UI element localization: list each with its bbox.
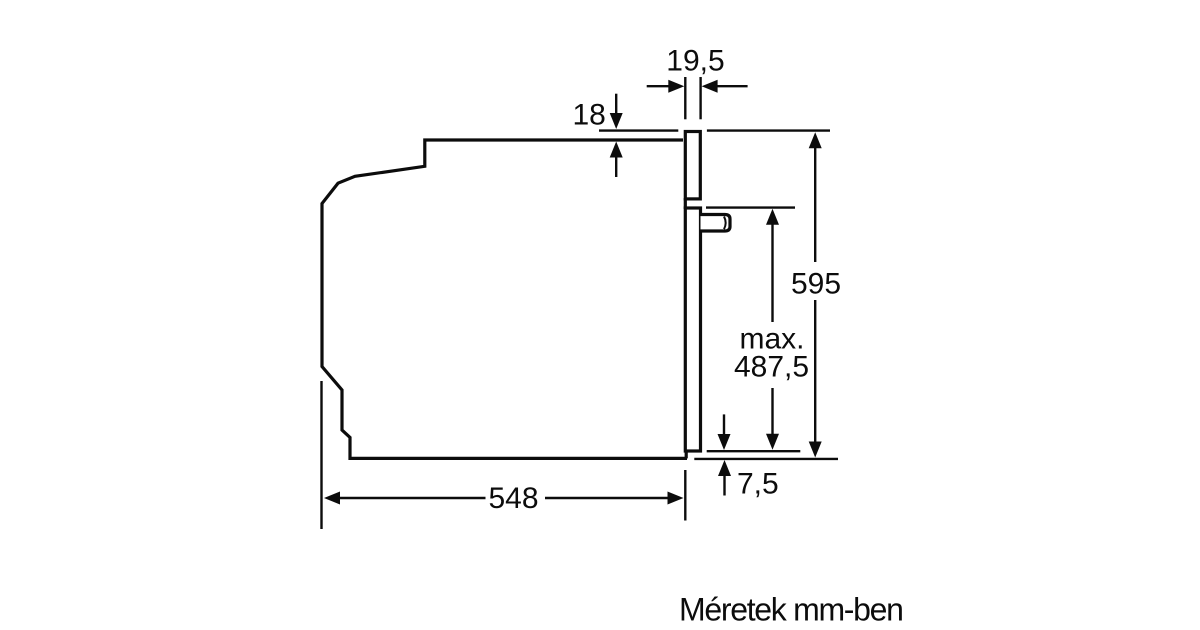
- svg-text:18: 18: [573, 99, 606, 132]
- svg-text:487,5: 487,5: [734, 351, 809, 384]
- svg-text:595: 595: [791, 268, 841, 301]
- svg-text:19,5: 19,5: [666, 45, 724, 78]
- svg-text:548: 548: [488, 482, 538, 515]
- svg-text:Méretek mm-ben: Méretek mm-ben: [679, 592, 903, 628]
- svg-text:7,5: 7,5: [737, 468, 779, 501]
